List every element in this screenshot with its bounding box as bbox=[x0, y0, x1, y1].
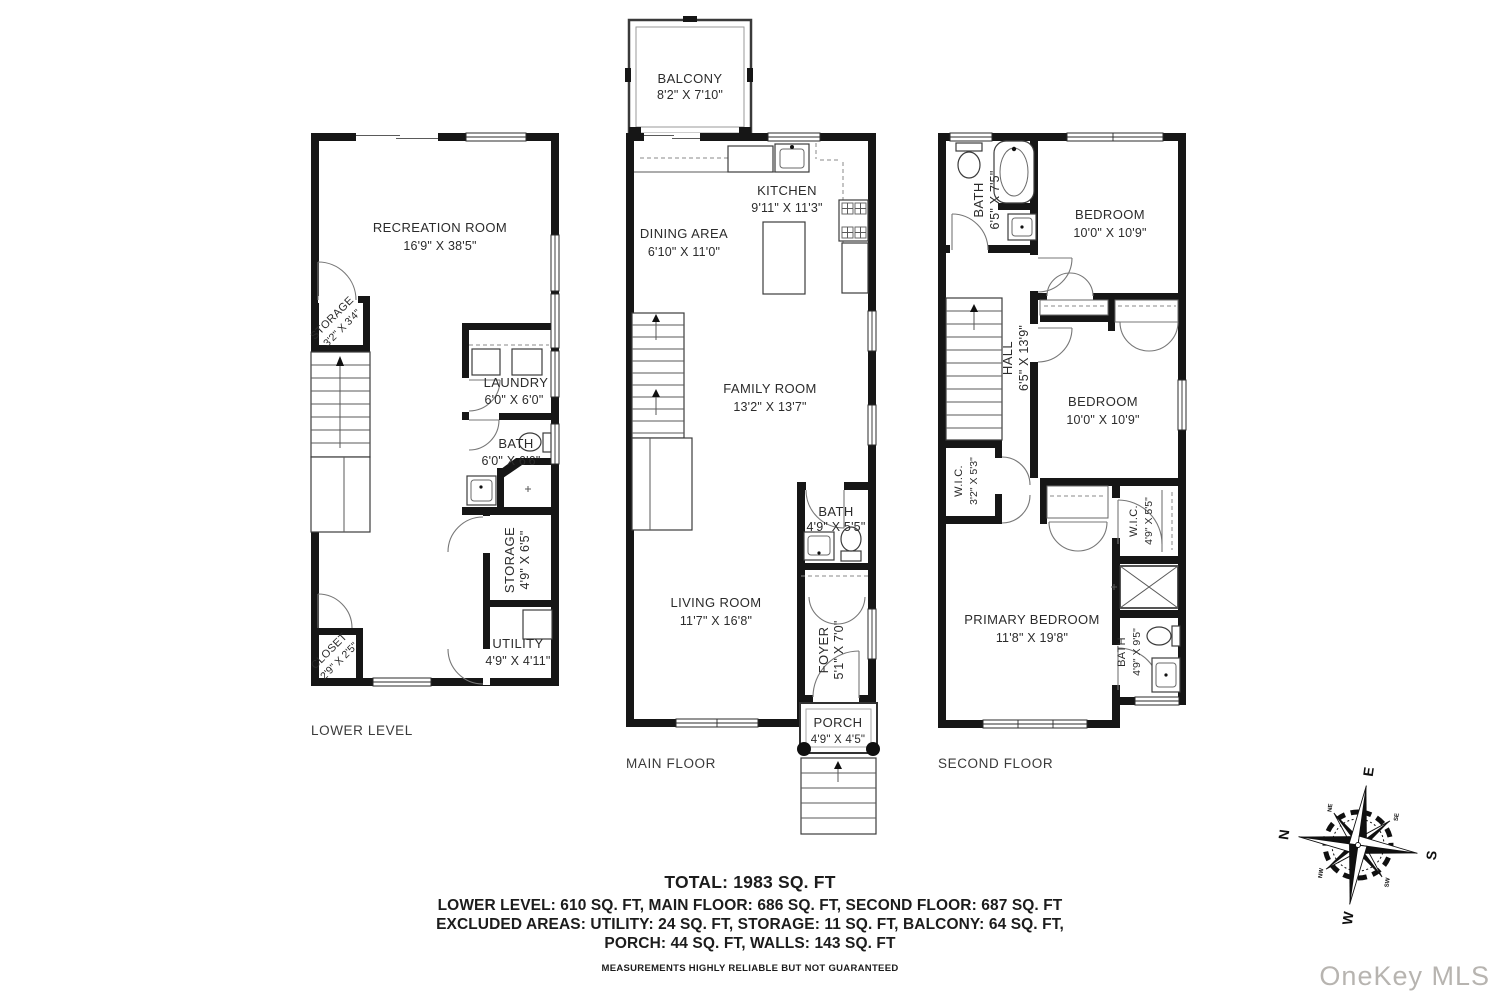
foyer-dims: 5'1" X 7'0" bbox=[832, 621, 846, 680]
bath1-dims: 6'5" X 7'5" bbox=[988, 171, 1002, 230]
window bbox=[868, 405, 876, 445]
hall-dims: 6'5" X 13'9" bbox=[1017, 325, 1031, 391]
counter bbox=[842, 243, 868, 293]
living-label: LIVING ROOM bbox=[670, 595, 761, 610]
family-dims: 13'2" X 13'7" bbox=[733, 400, 806, 414]
second-floor-title: SECOND FLOOR bbox=[938, 756, 1053, 771]
recreation-room-dims: 16'9" X 38'5" bbox=[403, 239, 476, 253]
compass-east-label: E bbox=[1360, 766, 1377, 777]
window bbox=[983, 720, 1087, 728]
primary-bedroom-label: PRIMARY BEDROOM bbox=[964, 612, 1100, 627]
foyer-closet bbox=[801, 576, 870, 624]
bedroom2-label: BEDROOM bbox=[1068, 394, 1138, 409]
laundry-dims: 6'0" X 6'0" bbox=[485, 393, 544, 407]
wic1-label: W.I.C. bbox=[953, 465, 965, 497]
recreation-room-label: RECREATION ROOM bbox=[373, 220, 507, 235]
toilet-tank-icon bbox=[841, 551, 861, 561]
second-labels: BATH 6'5" X 7'5" BEDROOM 10'0" X 10'9" H… bbox=[938, 171, 1155, 771]
foyer-label: FOYER bbox=[816, 627, 831, 674]
bedroom2-dims: 10'0" X 10'9" bbox=[1066, 413, 1139, 427]
utility-label: UTILITY bbox=[492, 636, 543, 651]
toilet-tank-icon bbox=[956, 143, 982, 151]
lower-level-plan: RECREATION ROOM 16'9" X 38'5" STORAGE 3'… bbox=[308, 133, 559, 738]
window bbox=[551, 351, 559, 397]
balcony-dims: 8'2" X 7'10" bbox=[657, 88, 723, 102]
main-stairs bbox=[632, 313, 692, 530]
utility-equipment-icon bbox=[523, 610, 552, 639]
drain-icon bbox=[525, 486, 531, 492]
wic2-label: W.I.C. bbox=[1128, 505, 1140, 537]
second-floor-plan: BATH 6'5" X 7'5" BEDROOM 10'0" X 10'9" H… bbox=[938, 133, 1186, 771]
floor-plan-canvas: RECREATION ROOM 16'9" X 38'5" STORAGE 3'… bbox=[0, 0, 1500, 1000]
excluded-areas-1: EXCLUDED AREAS: UTILITY: 24 SQ. FT, STOR… bbox=[0, 915, 1500, 934]
main-floor-plan: BALCONY 8'2" X 7'10" KITCHEN 9'11" X 11'… bbox=[625, 16, 880, 834]
laundry-appliances bbox=[469, 345, 549, 375]
porch-post-icon bbox=[797, 742, 811, 756]
window bbox=[1067, 133, 1163, 141]
kitchen-fixtures bbox=[634, 143, 868, 294]
onekey-mls-watermark: OneKey MLS bbox=[1319, 961, 1490, 992]
window bbox=[373, 678, 431, 686]
family-label: FAMILY ROOM bbox=[723, 381, 817, 396]
kitchen-dims: 9'11" X 11'3" bbox=[751, 201, 822, 215]
main-floor-title: MAIN FLOOR bbox=[626, 756, 716, 771]
stairs bbox=[311, 352, 370, 532]
window bbox=[868, 311, 876, 351]
window bbox=[466, 133, 526, 141]
porch-post-icon bbox=[866, 742, 880, 756]
toilet-icon bbox=[958, 152, 980, 178]
kitchen-label: KITCHEN bbox=[757, 183, 817, 198]
stove-icon bbox=[839, 200, 868, 241]
bath2-label: BATH bbox=[1116, 637, 1128, 667]
bedroom1-label: BEDROOM bbox=[1075, 207, 1145, 222]
disclaimer: MEASUREMENTS HIGHLY RELIABLE BUT NOT GUA… bbox=[0, 963, 1500, 974]
compass-ne-label: NE bbox=[1327, 803, 1334, 812]
entry-steps bbox=[801, 758, 876, 834]
dining-label: DINING AREA bbox=[640, 226, 728, 241]
compass-se-label: SE bbox=[1394, 813, 1401, 822]
hall-label: HALL bbox=[1000, 341, 1015, 375]
bath1-label: BATH bbox=[971, 182, 986, 217]
bath2-dims: 4'9" X 9'5" bbox=[1131, 628, 1143, 676]
toilet-tank-icon bbox=[543, 433, 551, 452]
toilet-tank-icon bbox=[1172, 626, 1180, 646]
washer-icon bbox=[472, 349, 500, 375]
toilet-icon bbox=[1147, 627, 1171, 645]
window bbox=[551, 424, 559, 464]
bath2-fixtures bbox=[1147, 626, 1180, 692]
second-stairs bbox=[946, 298, 1002, 440]
window bbox=[551, 294, 559, 348]
floor-areas: LOWER LEVEL: 610 SQ. FT, MAIN FLOOR: 686… bbox=[0, 896, 1500, 915]
excluded-areas-2: PORCH: 44 SQ. FT, WALLS: 143 SQ. FT bbox=[0, 934, 1500, 953]
kitchen-island bbox=[763, 222, 805, 294]
window bbox=[1135, 697, 1179, 705]
window bbox=[551, 235, 559, 291]
compass-north-label: N bbox=[1275, 828, 1292, 840]
porch-dims: 4'9" X 4'5" bbox=[811, 734, 865, 746]
total-area: TOTAL: 1983 SQ. FT bbox=[0, 872, 1500, 893]
area-summary: TOTAL: 1983 SQ. FT LOWER LEVEL: 610 SQ. … bbox=[0, 872, 1500, 974]
living-dims: 11'7" X 16'8" bbox=[680, 614, 752, 628]
lower-bath-label: BATH bbox=[498, 436, 533, 451]
utility-dims: 4'9" X 4'11" bbox=[485, 654, 550, 668]
bedroom1-dims: 10'0" X 10'9" bbox=[1073, 226, 1146, 240]
main-bath-label: BATH bbox=[818, 504, 853, 519]
primary-bedroom-dims: 11'8" X 19'8" bbox=[996, 631, 1068, 645]
compass-south-label: S bbox=[1423, 850, 1440, 861]
balcony-label: BALCONY bbox=[658, 71, 723, 86]
window bbox=[868, 609, 876, 659]
lower-level-title: LOWER LEVEL bbox=[311, 723, 413, 738]
shower-box bbox=[1111, 566, 1178, 608]
porch-label: PORCH bbox=[814, 715, 863, 730]
main-bath-dims: 4'9" X 5'5" bbox=[807, 520, 866, 534]
window bbox=[676, 719, 758, 727]
wic1-dims: 3'2" X 5'3" bbox=[968, 457, 980, 505]
window bbox=[1178, 380, 1186, 430]
storage-label: STORAGE bbox=[502, 527, 517, 593]
lower-bath-dims: 6'0" X 6'6" bbox=[482, 454, 541, 468]
dining-dims: 6'10" X 11'0" bbox=[648, 245, 720, 259]
window bbox=[768, 133, 820, 141]
floor-plan-page: RECREATION ROOM 16'9" X 38'5" STORAGE 3'… bbox=[0, 0, 1500, 1000]
laundry-label: LAUNDRY bbox=[484, 375, 549, 390]
counter bbox=[728, 146, 773, 172]
wic2-dims: 4'9" X 5'5" bbox=[1143, 497, 1155, 545]
dryer-icon bbox=[512, 349, 542, 375]
window bbox=[950, 133, 992, 141]
storage-dims: 4'9" X 6'5" bbox=[518, 531, 532, 590]
